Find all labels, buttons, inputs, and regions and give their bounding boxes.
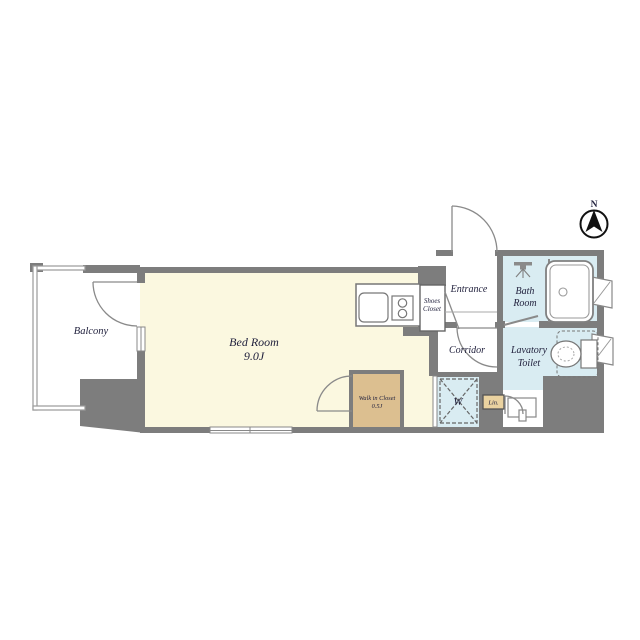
entrance-door-arc xyxy=(452,206,497,252)
wall-balcony-block xyxy=(80,379,145,433)
bath-room-label-2: Room xyxy=(512,298,536,309)
floor-plan: N Balcony Bed Room 9.0J Walk in Closet 0… xyxy=(0,0,640,640)
stove-burner-bottom xyxy=(398,309,406,317)
walk-in-closet-label: Walk in Closet xyxy=(359,395,396,402)
compass-north-label: N xyxy=(591,200,598,210)
linen-label: Lin. xyxy=(487,400,499,407)
wall-sink-nook-bottom xyxy=(501,427,545,433)
corridor-label: Corridor xyxy=(449,345,485,356)
railing-left xyxy=(33,266,37,410)
bathtub-icon xyxy=(546,261,593,322)
shoes-closet-label-1: Shoes xyxy=(424,297,441,305)
wall-corridor-lavatory xyxy=(497,327,503,376)
wall-entrance-bath xyxy=(497,256,503,327)
lavatory-label-1: Lavatory xyxy=(510,345,548,356)
shoes-closet-label-2: Closet xyxy=(423,305,442,313)
wall-bedroom-left-upper xyxy=(137,271,145,283)
bath-room-label-1: Bath xyxy=(516,286,535,297)
wall-block-bottom-right xyxy=(543,376,604,433)
wall-bedroom-top xyxy=(137,267,424,273)
wall-top-right xyxy=(495,250,604,256)
lavatory-label-2: Toilet xyxy=(518,358,541,369)
entrance-label: Entrance xyxy=(450,284,488,295)
railing-bottom xyxy=(33,406,85,410)
compass-icon: N xyxy=(581,200,608,238)
washer-folding-door xyxy=(433,376,437,427)
stove-burner-top xyxy=(398,299,406,307)
lavatory-floor-lower xyxy=(501,376,543,392)
bedroom-label: Bed Room xyxy=(229,335,279,349)
washer-label: W xyxy=(453,396,463,408)
balcony-railing xyxy=(33,266,85,410)
kitchen-sink-icon xyxy=(359,293,388,322)
wall-balcony-top xyxy=(83,265,140,273)
wall-top-stub xyxy=(436,250,453,256)
floor-plan-page: N Balcony Bed Room 9.0J Walk in Closet 0… xyxy=(0,0,640,640)
bedroom-size-label: 9.0J xyxy=(244,349,265,363)
wall-washer-bottom xyxy=(436,427,481,433)
railing-top xyxy=(33,266,85,270)
wall-corridor-washer xyxy=(436,372,481,377)
balcony-door-arc xyxy=(93,282,137,326)
kitchen xyxy=(356,284,421,326)
wall-corridor-left xyxy=(429,327,438,376)
wall-bedroom-left-lower xyxy=(137,351,145,382)
walk-in-closet-size-label: 0.5J xyxy=(372,403,384,410)
balcony-label: Balcony xyxy=(74,326,109,337)
wall-bedroom-bottom-left xyxy=(140,427,210,433)
